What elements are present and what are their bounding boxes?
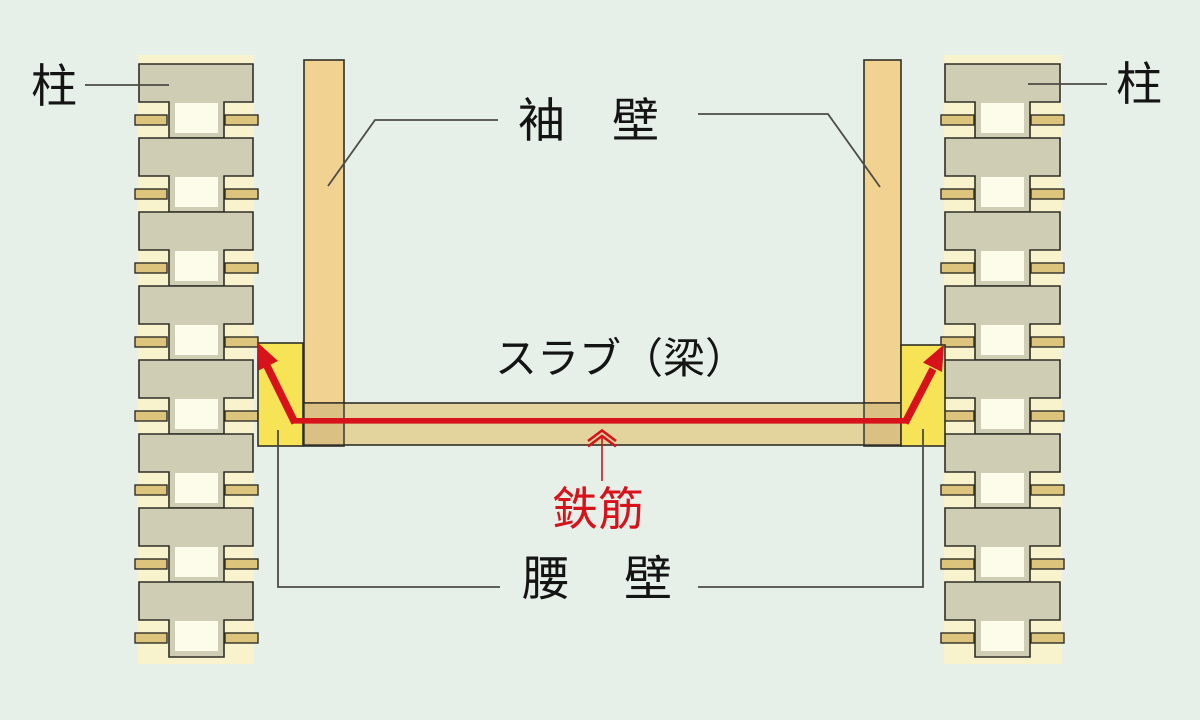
column-joint-square xyxy=(981,103,1024,133)
column-joint-square xyxy=(175,547,218,577)
waist-wall-label: 腰 壁 xyxy=(522,554,675,604)
column-tab-right xyxy=(225,115,258,125)
column-joint-square xyxy=(175,621,218,651)
column-tab-right xyxy=(225,485,258,495)
column-tab-right xyxy=(225,337,258,347)
column-joint-square xyxy=(981,399,1024,429)
column-tab-right xyxy=(1031,115,1064,125)
column-joint-square xyxy=(981,251,1024,281)
column-tab-left xyxy=(135,189,167,199)
column-tab-left xyxy=(135,263,167,273)
pillar-right-column xyxy=(941,64,1064,657)
diagram-canvas: 柱 柱 袖 壁 スラブ（梁） 鉄筋 腰 壁 xyxy=(0,0,1200,720)
column-tab-right xyxy=(225,559,258,569)
column-tab-left xyxy=(135,115,167,125)
column-tab-left xyxy=(941,485,974,495)
pillar-right-label: 柱 xyxy=(1116,60,1162,108)
sleeve-wall-left-shape xyxy=(304,60,344,446)
column-tab-right xyxy=(1031,337,1064,347)
column-tab-left xyxy=(941,263,974,273)
column-tab-left xyxy=(941,411,974,421)
column-tab-right xyxy=(225,189,258,199)
column-tab-right xyxy=(1031,263,1064,273)
pillar-left-label: 柱 xyxy=(31,62,77,110)
slab-wall-overlap-right xyxy=(864,403,901,445)
column-joint-square xyxy=(981,177,1024,207)
column-tab-left xyxy=(135,411,167,421)
column-tab-left xyxy=(135,485,167,495)
column-tab-right xyxy=(1031,633,1064,643)
column-joint-square xyxy=(981,621,1024,651)
column-tab-right xyxy=(225,263,258,273)
column-tab-left xyxy=(941,337,974,347)
column-tab-left xyxy=(941,189,974,199)
column-tab-left xyxy=(135,559,167,569)
column-joint-square xyxy=(981,473,1024,503)
column-joint-square xyxy=(175,177,218,207)
column-joint-square xyxy=(175,325,218,355)
column-tab-right xyxy=(1031,559,1064,569)
column-tab-right xyxy=(1031,485,1064,495)
column-tab-right xyxy=(225,411,258,421)
column-tab-right xyxy=(1031,411,1064,421)
column-joint-square xyxy=(175,251,218,281)
column-tab-left xyxy=(941,559,974,569)
column-joint-square xyxy=(981,325,1024,355)
column-joint-square xyxy=(175,399,218,429)
slab-wall-overlap-left xyxy=(304,403,344,445)
column-tab-left xyxy=(941,633,974,643)
column-tab-right xyxy=(225,633,258,643)
column-tab-left xyxy=(941,115,974,125)
column-tab-right xyxy=(1031,189,1064,199)
column-joint-square xyxy=(175,103,218,133)
slab-label: スラブ（梁） xyxy=(495,337,747,381)
rebar-label: 鉄筋 xyxy=(552,485,644,533)
sleeve-wall-label: 袖 壁 xyxy=(518,97,659,146)
sleeve-wall-right-shape xyxy=(864,60,901,446)
column-tab-left xyxy=(135,337,167,347)
column-tab-left xyxy=(135,633,167,643)
column-joint-square xyxy=(175,473,218,503)
column-joint-square xyxy=(981,547,1024,577)
pillar-left-column xyxy=(135,64,258,657)
